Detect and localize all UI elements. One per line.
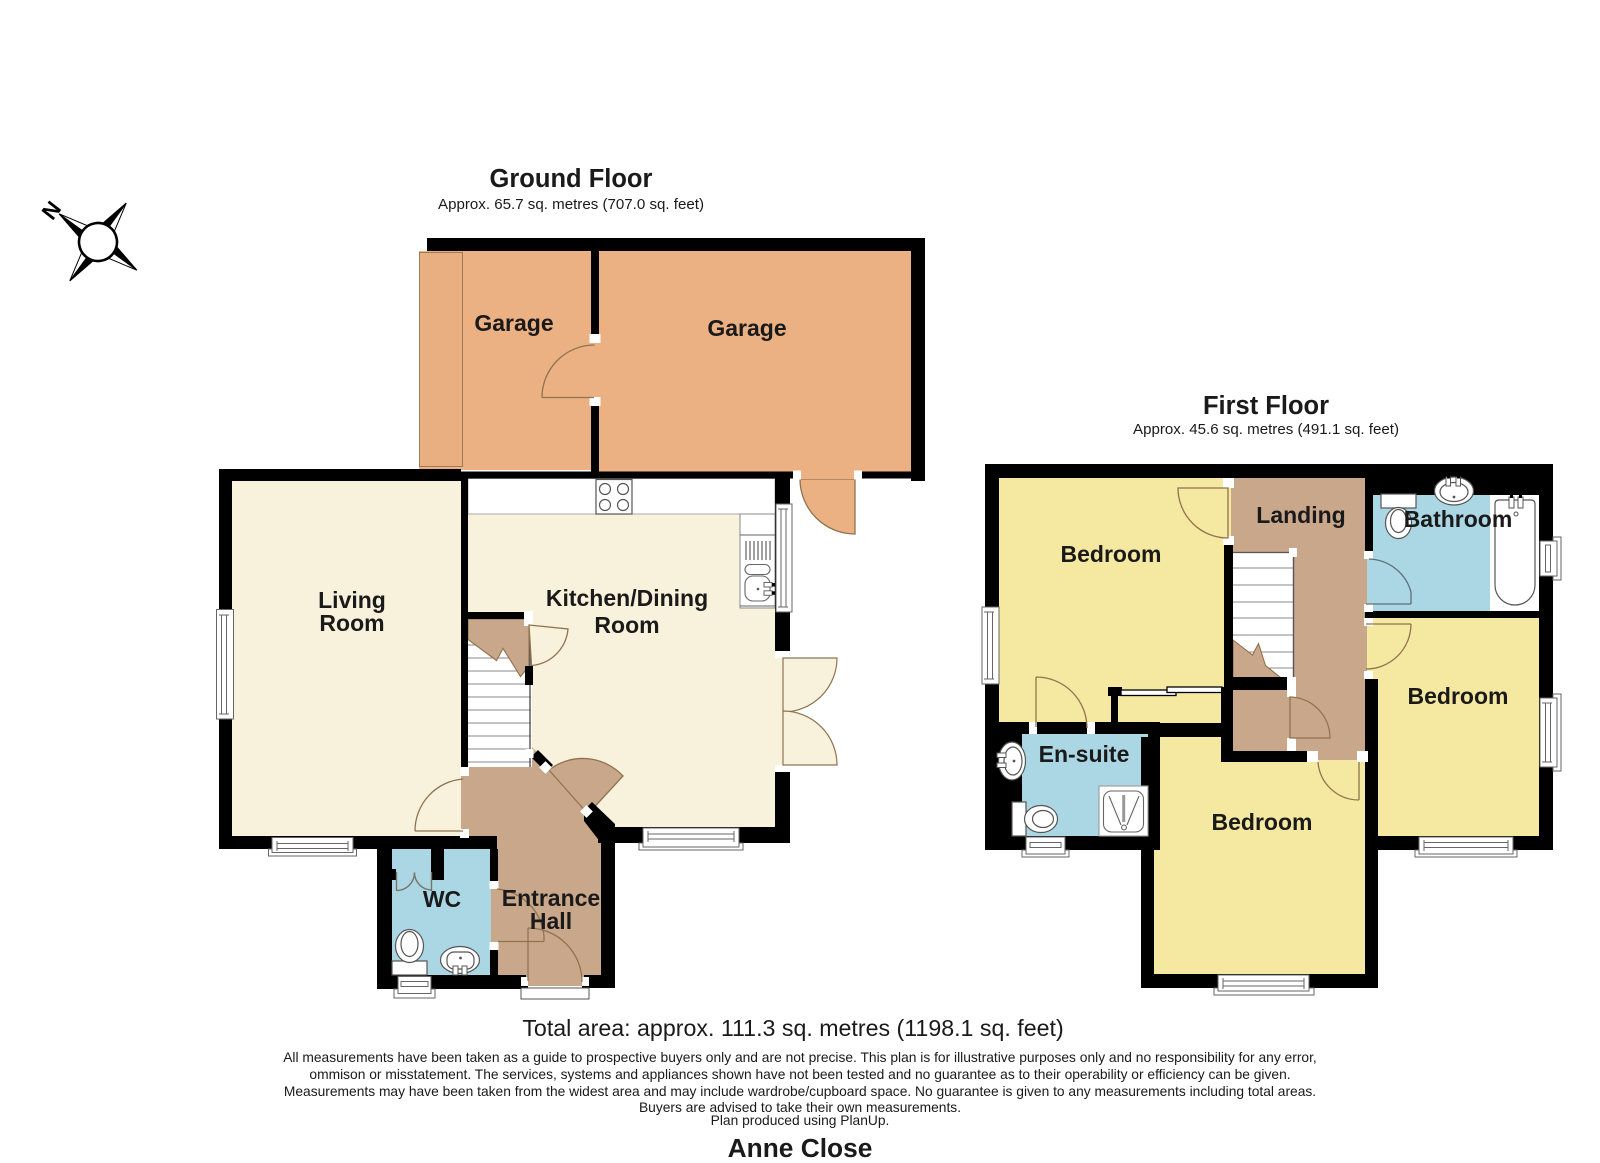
svg-text:Garage: Garage <box>474 310 553 336</box>
svg-text:Bedroom: Bedroom <box>1408 683 1509 709</box>
svg-text:Bedroom: Bedroom <box>1061 541 1162 567</box>
svg-text:Bedroom: Bedroom <box>1212 809 1313 835</box>
svg-text:Total area: approx. 111.3 sq.: Total area: approx. 111.3 sq. metres (11… <box>522 1015 1063 1041</box>
svg-text:First Floor: First Floor <box>1203 392 1329 420</box>
svg-text:Approx. 45.6 sq. metres (491.1: Approx. 45.6 sq. metres (491.1 sq. feet) <box>1133 421 1399 438</box>
svg-text:Ground Floor: Ground Floor <box>490 165 653 193</box>
svg-text:Kitchen/Dining: Kitchen/Dining <box>546 585 708 611</box>
svg-text:Measurements may have been tak: Measurements may have been taken from th… <box>284 1084 1316 1099</box>
svg-text:Hall: Hall <box>530 908 572 934</box>
svg-text:Bathroom: Bathroom <box>1404 506 1513 532</box>
svg-text:Landing: Landing <box>1256 502 1345 528</box>
svg-text:Room: Room <box>319 610 384 636</box>
svg-text:Plan produced using PlanUp.: Plan produced using PlanUp. <box>711 1113 890 1128</box>
svg-text:Approx. 65.7 sq. metres (707.0: Approx. 65.7 sq. metres (707.0 sq. feet) <box>438 196 704 213</box>
svg-text:En-suite: En-suite <box>1039 741 1130 767</box>
svg-text:WC: WC <box>423 886 461 912</box>
svg-text:Anne Close: Anne Close <box>728 1133 873 1163</box>
svg-text:Garage: Garage <box>707 315 786 341</box>
svg-text:Room: Room <box>594 612 659 638</box>
svg-text:All measurements have been tak: All measurements have been taken as a gu… <box>283 1050 1317 1065</box>
svg-text:ommison or misstatement. The s: ommison or misstatement. The services, s… <box>309 1067 1290 1082</box>
